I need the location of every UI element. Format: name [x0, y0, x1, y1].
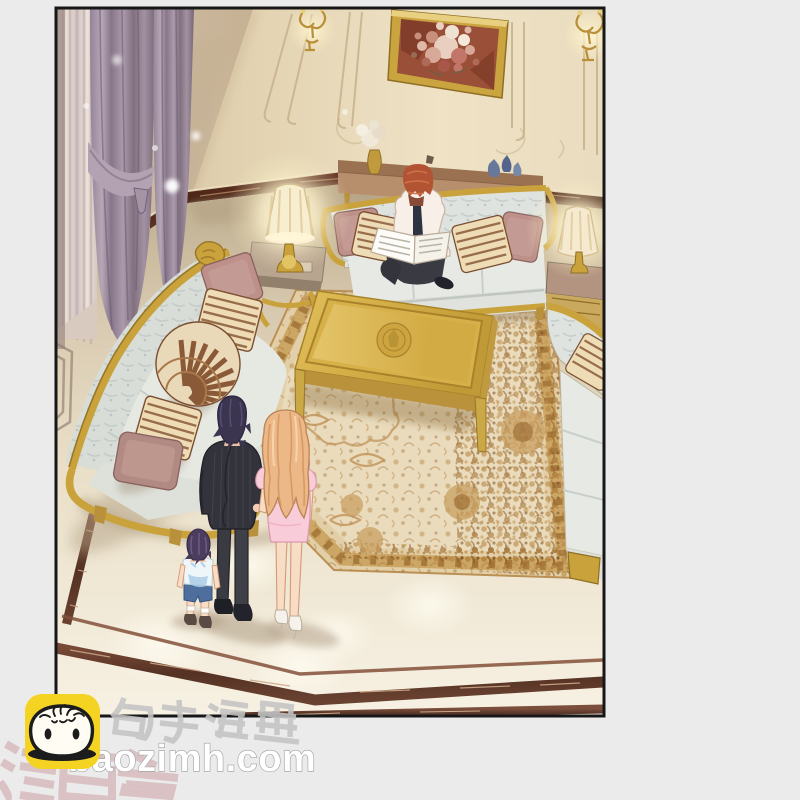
svg-text:baozimh.com: baozimh.com	[68, 738, 316, 780]
